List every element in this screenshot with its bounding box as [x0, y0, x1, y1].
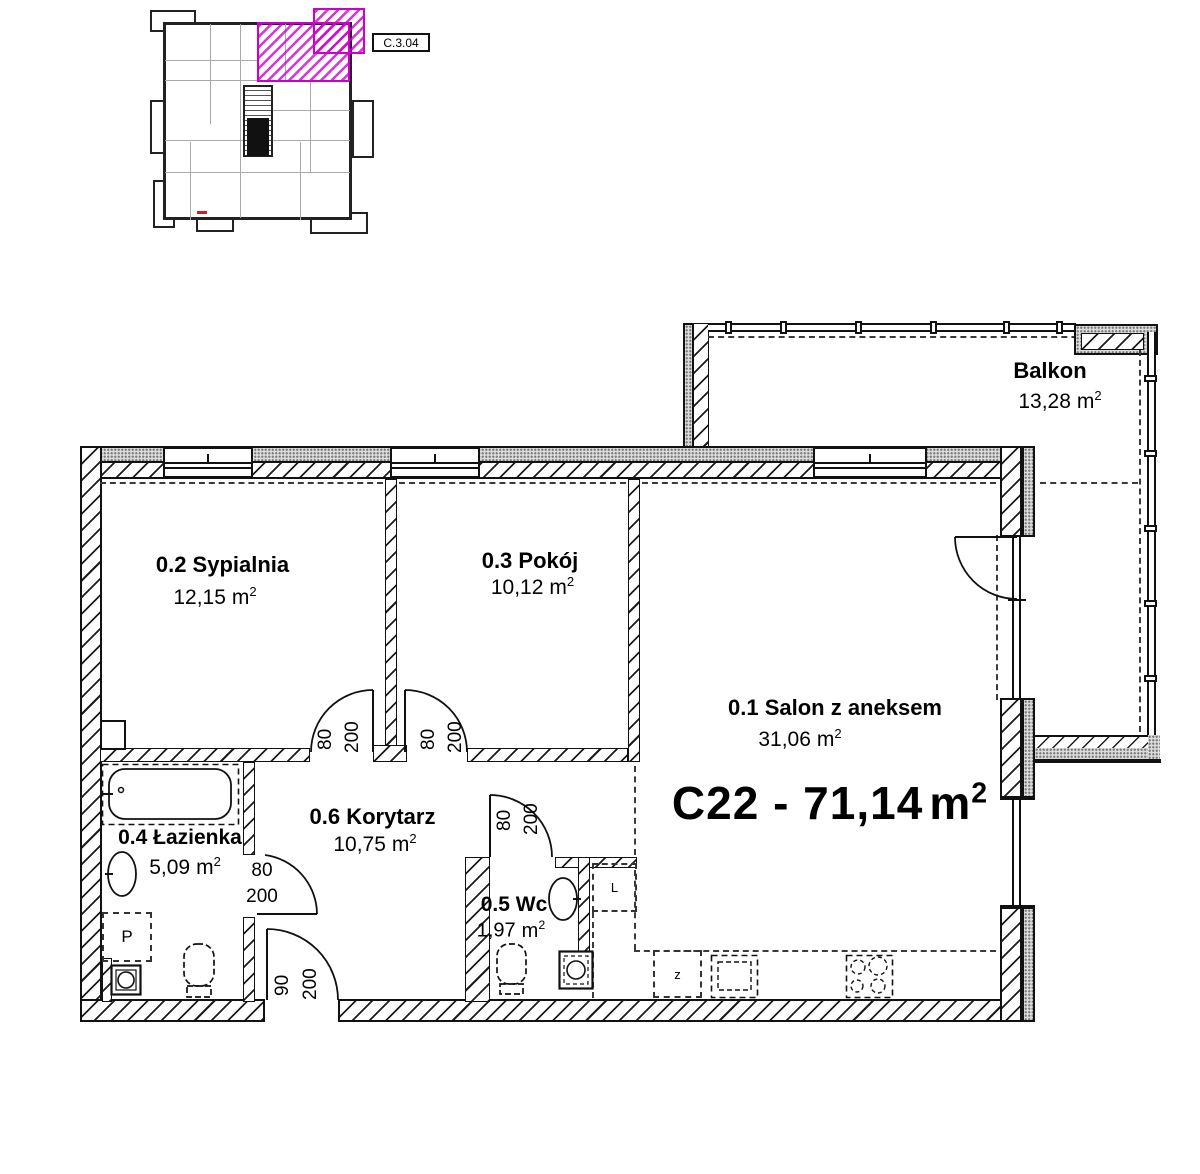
wall-recess-niche	[100, 720, 126, 750]
dishwasher-label: z	[674, 967, 681, 982]
door-dim-wc-width: 80	[494, 793, 516, 848]
fridge: L	[592, 863, 637, 912]
balcony-bottom-wall-outer	[1035, 748, 1158, 759]
washing-machine-label: P	[121, 927, 132, 947]
stove	[845, 954, 895, 1000]
bottom-wall-left	[80, 999, 265, 1022]
balcony-bottom-wall-end	[1148, 735, 1160, 759]
fridge-label: L	[611, 880, 618, 895]
railing-post	[725, 321, 732, 334]
balcony-left-wall	[693, 323, 709, 448]
lintel-dashed-bedroom	[100, 482, 383, 484]
overview-interior-line	[165, 172, 350, 173]
railing-post	[1144, 600, 1157, 607]
dishwasher: z	[653, 950, 702, 998]
railing-post	[1144, 450, 1157, 457]
right-wall-seg3	[1000, 907, 1022, 1022]
door-dim-entrance-height: 200	[300, 950, 326, 1018]
railing-post	[780, 321, 787, 334]
right-wall-seg3-outer	[1022, 907, 1035, 1022]
door-dim-bathroom-width: 80	[240, 860, 284, 882]
room-area-bedroom: 12,15m2	[120, 584, 310, 610]
toilet-wc	[494, 942, 530, 996]
right-wall-seg2-outer	[1022, 698, 1035, 798]
room-name-bathroom: 0.4 Łazienka	[90, 826, 270, 850]
door-dim-bedroom-width: 80	[315, 712, 337, 767]
balcony-leg-dashed-line	[1040, 482, 1138, 484]
railing-post	[1144, 375, 1157, 382]
washing-machine: P	[102, 912, 152, 962]
right-wall-seg1-outer	[1022, 446, 1035, 537]
room-name-corridor: 0.6 Korytarz	[270, 804, 475, 830]
toilet-bathroom	[180, 942, 218, 1000]
balcony-bottom-wall-bottom-edge	[1035, 759, 1161, 763]
door-dim-bathroom-height: 200	[238, 886, 286, 908]
bottom-wall-right	[338, 999, 1035, 1022]
overview-interior-line	[300, 142, 301, 220]
window-bedroom	[163, 447, 253, 478]
room-area-livingroom: 31,06m2	[700, 726, 900, 752]
lintel-dashed-room	[399, 482, 626, 484]
lintel-dashed-livingroom	[642, 482, 996, 484]
wall-bathroom-right-lower	[243, 917, 255, 1002]
balcony-bottom-wall	[1035, 737, 1148, 748]
right-wall-seg1	[1000, 446, 1022, 537]
shaft-drain-wc	[558, 950, 594, 990]
railing-post	[855, 321, 862, 334]
door-dim-room-width: 80	[418, 712, 440, 767]
balcony-area: 13,28m2	[980, 388, 1140, 414]
wall-corridor-top-left	[100, 748, 310, 762]
window-livingroom-top	[813, 447, 927, 478]
overview-unit-label: C.3.04	[372, 33, 430, 52]
window-room	[390, 447, 480, 478]
room-name-room: 0.3 Pokój	[430, 548, 630, 574]
overview-interior-line	[165, 60, 257, 61]
overview-balcony-right	[352, 100, 374, 158]
room-area-wc: 1,97m2	[455, 918, 567, 943]
door-dim-entrance-width: 90	[272, 955, 296, 1015]
room-name-wc: 0.5 Wc	[455, 893, 573, 917]
overview-plan: C.3.04	[0, 0, 460, 250]
floor-plan-canvas: C.3.04	[0, 0, 1200, 1174]
railing-post	[930, 321, 937, 334]
apartment-title: C22 - 71,14m2	[650, 776, 1010, 830]
overview-interior-line	[310, 82, 311, 172]
room-name-livingroom: 0.1 Salon z aneksem	[700, 695, 970, 721]
railing-post	[1003, 321, 1010, 334]
balcony-railing-top	[708, 323, 1076, 332]
room-area-room: 10,12m2	[440, 574, 625, 600]
overview-interior-line	[190, 142, 191, 220]
door-dim-wc-height: 200	[521, 788, 545, 850]
overview-highlighted-unit	[257, 22, 350, 82]
door-dim-room-height: 200	[445, 706, 469, 768]
balcony-corner-wall	[1081, 333, 1144, 350]
wall-bedroom-room-divider	[385, 479, 397, 762]
left-wall	[80, 446, 102, 1022]
railing-post	[1144, 525, 1157, 532]
balcony-name: Balkon	[980, 358, 1120, 384]
overview-elevator-core	[247, 118, 269, 156]
overview-interior-line	[240, 24, 241, 218]
door-dim-bedroom-height: 200	[342, 706, 366, 768]
wall-room-livingroom-divider	[628, 479, 640, 762]
overview-interior-line	[210, 24, 211, 124]
kitchen-sink	[710, 954, 760, 1000]
door-arc-balcony	[950, 530, 1025, 605]
room-name-bedroom: 0.2 Sypialnia	[120, 552, 325, 578]
railing-post	[1056, 321, 1063, 334]
railing-post	[1144, 675, 1157, 682]
overview-red-mark	[197, 211, 207, 214]
passage-dashed-upper	[634, 766, 636, 855]
bathtub	[101, 763, 241, 827]
room-area-corridor: 10,75m2	[280, 831, 470, 857]
floor-drain-bathroom	[110, 964, 142, 996]
wall-corridor-top-right	[467, 748, 628, 762]
overview-unit-label-text: C.3.04	[383, 36, 418, 50]
